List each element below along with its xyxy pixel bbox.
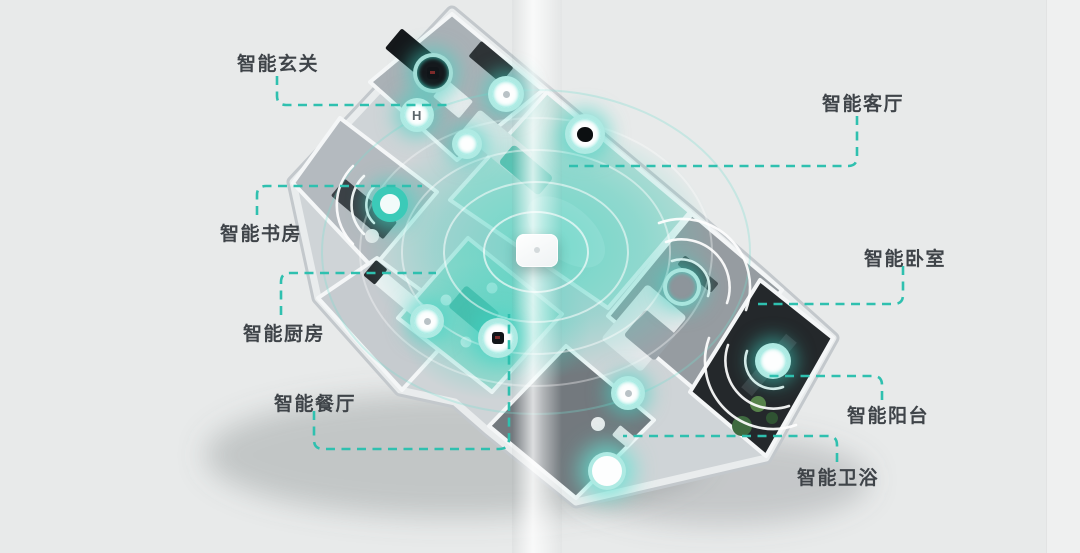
thermostat-icon [663,268,701,306]
floorplan-illustration [0,0,1080,553]
label-smart-living: 智能客厅 [822,89,904,116]
kitchen-sensor-icon [410,304,444,338]
lock-glyph: H [412,108,422,123]
label-smart-kitchen: 智能厨房 [243,319,325,346]
label-smart-bedroom: 智能卧室 [864,244,946,271]
bath-sensor-icon [611,376,645,410]
door-lock-icon: H [400,98,434,132]
label-smart-bathroom: 智能卫浴 [797,463,879,490]
sensor-dot [625,390,632,397]
camera-lens [577,127,593,142]
speaker-icon [372,186,408,222]
switch-square [492,332,504,344]
camera-icon [565,114,605,154]
bath-light-icon [588,452,626,490]
light-sensor-icon [452,129,482,159]
downlight-dot [503,91,510,98]
sensor-dot [424,318,431,325]
label-smart-dining: 智能餐厅 [274,389,356,416]
downlight-icon [488,76,524,112]
gateway-hub-device [516,234,558,267]
scene-switch-icon [478,318,518,358]
smart-home-infographic: H 智能玄关 智能客厅 智能书房 智能厨房 智能餐厅 智能卧室 智能阳台 智能卫… [0,0,1080,553]
label-smart-entrance: 智能玄关 [237,49,319,76]
wall-switch-icon [413,53,453,93]
switch-screen-icon [427,67,439,79]
balcony-light-icon [755,343,791,379]
label-smart-balcony: 智能阳台 [847,401,929,428]
label-smart-study: 智能书房 [220,219,302,246]
